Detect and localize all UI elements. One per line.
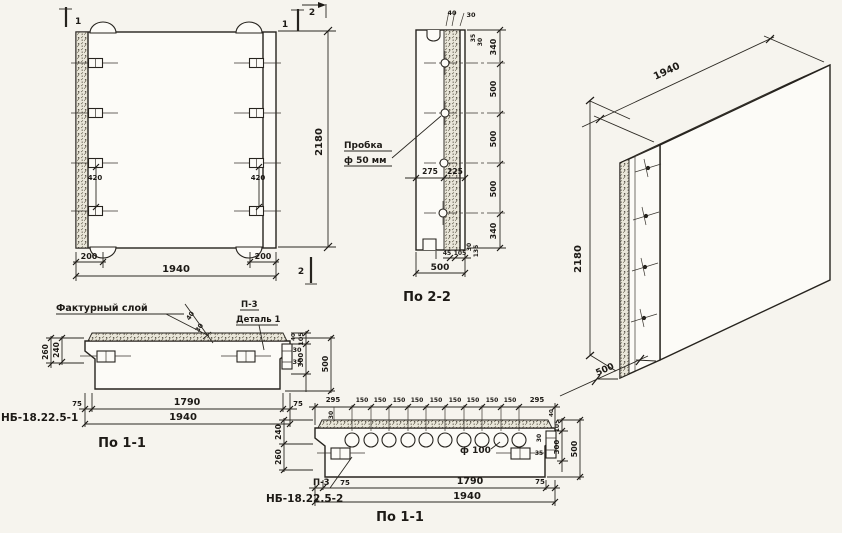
isometric-view: 1940 2180 500 — [560, 35, 830, 396]
s11a-view-label: По 1-1 — [98, 436, 146, 451]
dim-200-left: 200 — [81, 252, 98, 261]
s11b-dim-1790: 1790 — [457, 476, 484, 487]
s11a-callout-texture: Фактурный слой — [56, 303, 148, 314]
s11a-texture-strip — [88, 333, 287, 341]
s11b-dim-150: 150 — [393, 397, 406, 404]
s11b-dim-150: 150 — [486, 397, 499, 404]
s11b-left-dims — [279, 418, 313, 472]
dim-bot-rot-135: 135 — [473, 245, 480, 258]
s11b-dim-right-300: 300 — [553, 440, 561, 455]
plug-2 — [441, 109, 449, 117]
dim-500-2: 500 — [489, 130, 498, 147]
top-notch — [427, 30, 440, 41]
dim-500-3: 500 — [489, 180, 498, 197]
s11b-dim-right-105: 105 — [554, 420, 561, 433]
dim-1940: 1940 — [162, 264, 190, 275]
s11b-dim-1940: 1940 — [453, 491, 481, 502]
iso-dim-500: 500 — [595, 362, 616, 379]
dim-420-left: 420 — [88, 174, 103, 182]
s11a-callout-p3: П-3 — [241, 300, 258, 310]
s11a-dim-right-500: 500 — [321, 355, 330, 372]
s11a-dim-240: 240 — [52, 342, 61, 358]
cut-mark-1-left: 1 — [75, 17, 81, 27]
callout-plug-line2: ф 50 мм — [344, 156, 386, 166]
s11b-dim-295l: 295 — [326, 396, 341, 404]
s11a-dim-1940: 1940 — [169, 412, 197, 423]
bottom-notch — [423, 239, 436, 250]
cut-mark-1-right: 1 — [282, 20, 288, 30]
blueprint-page: 420 420 2180 200 200 1940 1 1 2 2 — [0, 0, 842, 533]
panel-outline — [76, 32, 276, 248]
s11b-dim-240: 240 — [274, 424, 283, 440]
s11a-end-detail — [282, 344, 292, 369]
section-2-2-view: 340 500 500 500 340 40 30 35 30 275 225 … — [344, 9, 506, 305]
dim-275: 275 — [422, 167, 438, 176]
s11b-dim-75r: 75 — [535, 478, 545, 486]
s11b-dim-right-40: 40 — [549, 409, 555, 417]
dim-340-bottom: 340 — [489, 222, 498, 239]
dim-45: 45 — [443, 250, 451, 257]
dim-top-40: 40 — [447, 9, 457, 17]
left-texture-edge — [76, 32, 88, 248]
dim-2180: 2180 — [314, 128, 325, 156]
s11a-body — [85, 341, 290, 389]
corner-recess-tr — [236, 22, 262, 33]
s11a-part-mark: НБ-18.22.5-1 — [1, 412, 78, 424]
corner-recess-tl — [90, 22, 116, 33]
s11a-dim-260: 260 — [41, 344, 50, 360]
s11b-dim-150: 150 — [356, 397, 369, 404]
s11b-dim-right-500: 500 — [570, 440, 579, 457]
plug-1 — [441, 59, 449, 67]
panel-drawing: 420 420 2180 200 200 1940 1 1 2 2 — [0, 0, 842, 533]
s11b-dim-left-30: 30 — [328, 411, 335, 419]
iso-front-face — [660, 65, 830, 360]
iso-texture-side — [620, 159, 629, 378]
s11a-dim-75l: 75 — [72, 400, 82, 408]
s11b-texture-strip — [318, 420, 552, 428]
s11b-dim-tab-30: 30 — [536, 434, 543, 442]
front-elevation-view: 420 420 2180 200 200 1940 1 1 2 2 — [59, 2, 336, 284]
height-dim — [278, 31, 336, 247]
s11b-dim-150: 150 — [430, 397, 443, 404]
s11b-tab-left — [331, 448, 350, 459]
cut-mark-2-top: 2 — [309, 8, 315, 18]
dim-500-1: 500 — [489, 80, 498, 97]
s11a-dim-diag-40: 40 — [184, 310, 196, 322]
s11a-dim-diag-30: 30 — [193, 322, 205, 334]
plug-4 — [439, 209, 447, 217]
dim-bot-rot-30: 30 — [466, 243, 473, 251]
section-1-1-view-type1: 240 260 40 30 30 35 40 105 300 500 75 17… — [1, 300, 335, 451]
iso-dim-2180: 2180 — [573, 245, 584, 273]
s11b-view-label: По 1-1 — [376, 510, 424, 525]
cut-arrow-2 — [318, 2, 326, 8]
s11b-dim-150: 150 — [449, 397, 462, 404]
s11a-callout-detail: Деталь 1 — [236, 315, 281, 325]
s11b-dim-tab-35: 35 — [535, 450, 543, 457]
s11b-dim-75l: 75 — [340, 479, 350, 487]
dim-225: 225 — [447, 167, 463, 176]
s11b-dim-150: 150 — [467, 397, 480, 404]
s11b-part-mark: НБ-18.22.5-2 — [266, 493, 343, 505]
s11b-callout-p3: П-3 — [313, 478, 330, 488]
s11a-dim-right-300: 300 — [297, 353, 305, 368]
s11a-dim-75r: 75 — [293, 400, 303, 408]
section-1-1-view-type2: 295 150 150 150 150 150 150 150 150 150 … — [266, 396, 584, 525]
plug-3 — [440, 159, 448, 167]
dim-200-right: 200 — [255, 252, 272, 261]
dim-420-right: 420 — [251, 174, 266, 182]
dim-105: 105 — [454, 250, 467, 257]
callout-plug-line1: Пробка — [344, 140, 383, 151]
dim-500-width: 500 — [431, 263, 450, 273]
s11a-dim-right-105: 105 — [297, 332, 305, 346]
iso-dim-1940: 1940 — [652, 61, 682, 83]
s11b-dim-150: 150 — [504, 397, 517, 404]
s11b-dim-295r: 295 — [530, 396, 545, 404]
s11b-dim-150: 150 — [411, 397, 424, 404]
cut-mark-2-bottom: 2 — [298, 267, 304, 277]
dim-top-rot-35: 35 — [470, 34, 477, 42]
s11b-dim-260: 260 — [274, 449, 283, 465]
section22-label: По 2-2 — [403, 290, 451, 305]
dim-340-top: 340 — [489, 38, 498, 55]
s11b-callout-hole: ф 100 — [460, 446, 491, 456]
dim-top-30: 30 — [466, 11, 476, 19]
s11a-dim-1790: 1790 — [174, 397, 201, 408]
s11b-tab-right — [511, 448, 530, 459]
s11b-dim-150: 150 — [374, 397, 387, 404]
dim-top-rot-30: 30 — [477, 38, 484, 46]
